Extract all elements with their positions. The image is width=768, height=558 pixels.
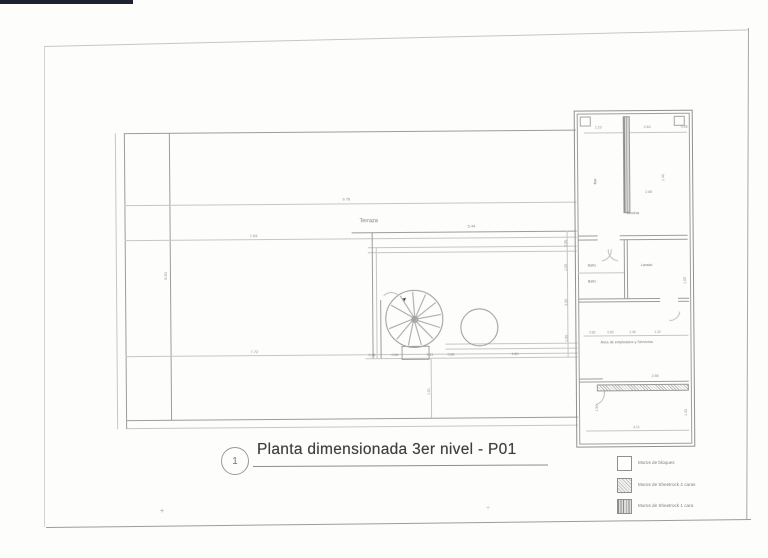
legend-swatch-sheetrock-1	[617, 499, 632, 514]
drawing-title: Planta dimensionada 3er nivel - P01	[257, 441, 517, 459]
title-block: 1 Planta dimensionada 3er nivel - P01	[0, 0, 768, 558]
title-underline	[253, 464, 548, 467]
legend-label: Muros de Sheetrock 1 cara	[638, 503, 693, 508]
detail-number-bubble: 1	[221, 447, 249, 475]
legend-swatch-blocks	[617, 456, 632, 471]
scanned-floor-plan-page: + +	[0, 0, 768, 558]
detail-number: 1	[232, 456, 238, 467]
legend-label: Muros de Sheetrock 2 caras	[638, 482, 695, 487]
legend-label: Muros de bloques	[638, 460, 675, 465]
legend-swatch-sheetrock-2	[617, 478, 632, 493]
